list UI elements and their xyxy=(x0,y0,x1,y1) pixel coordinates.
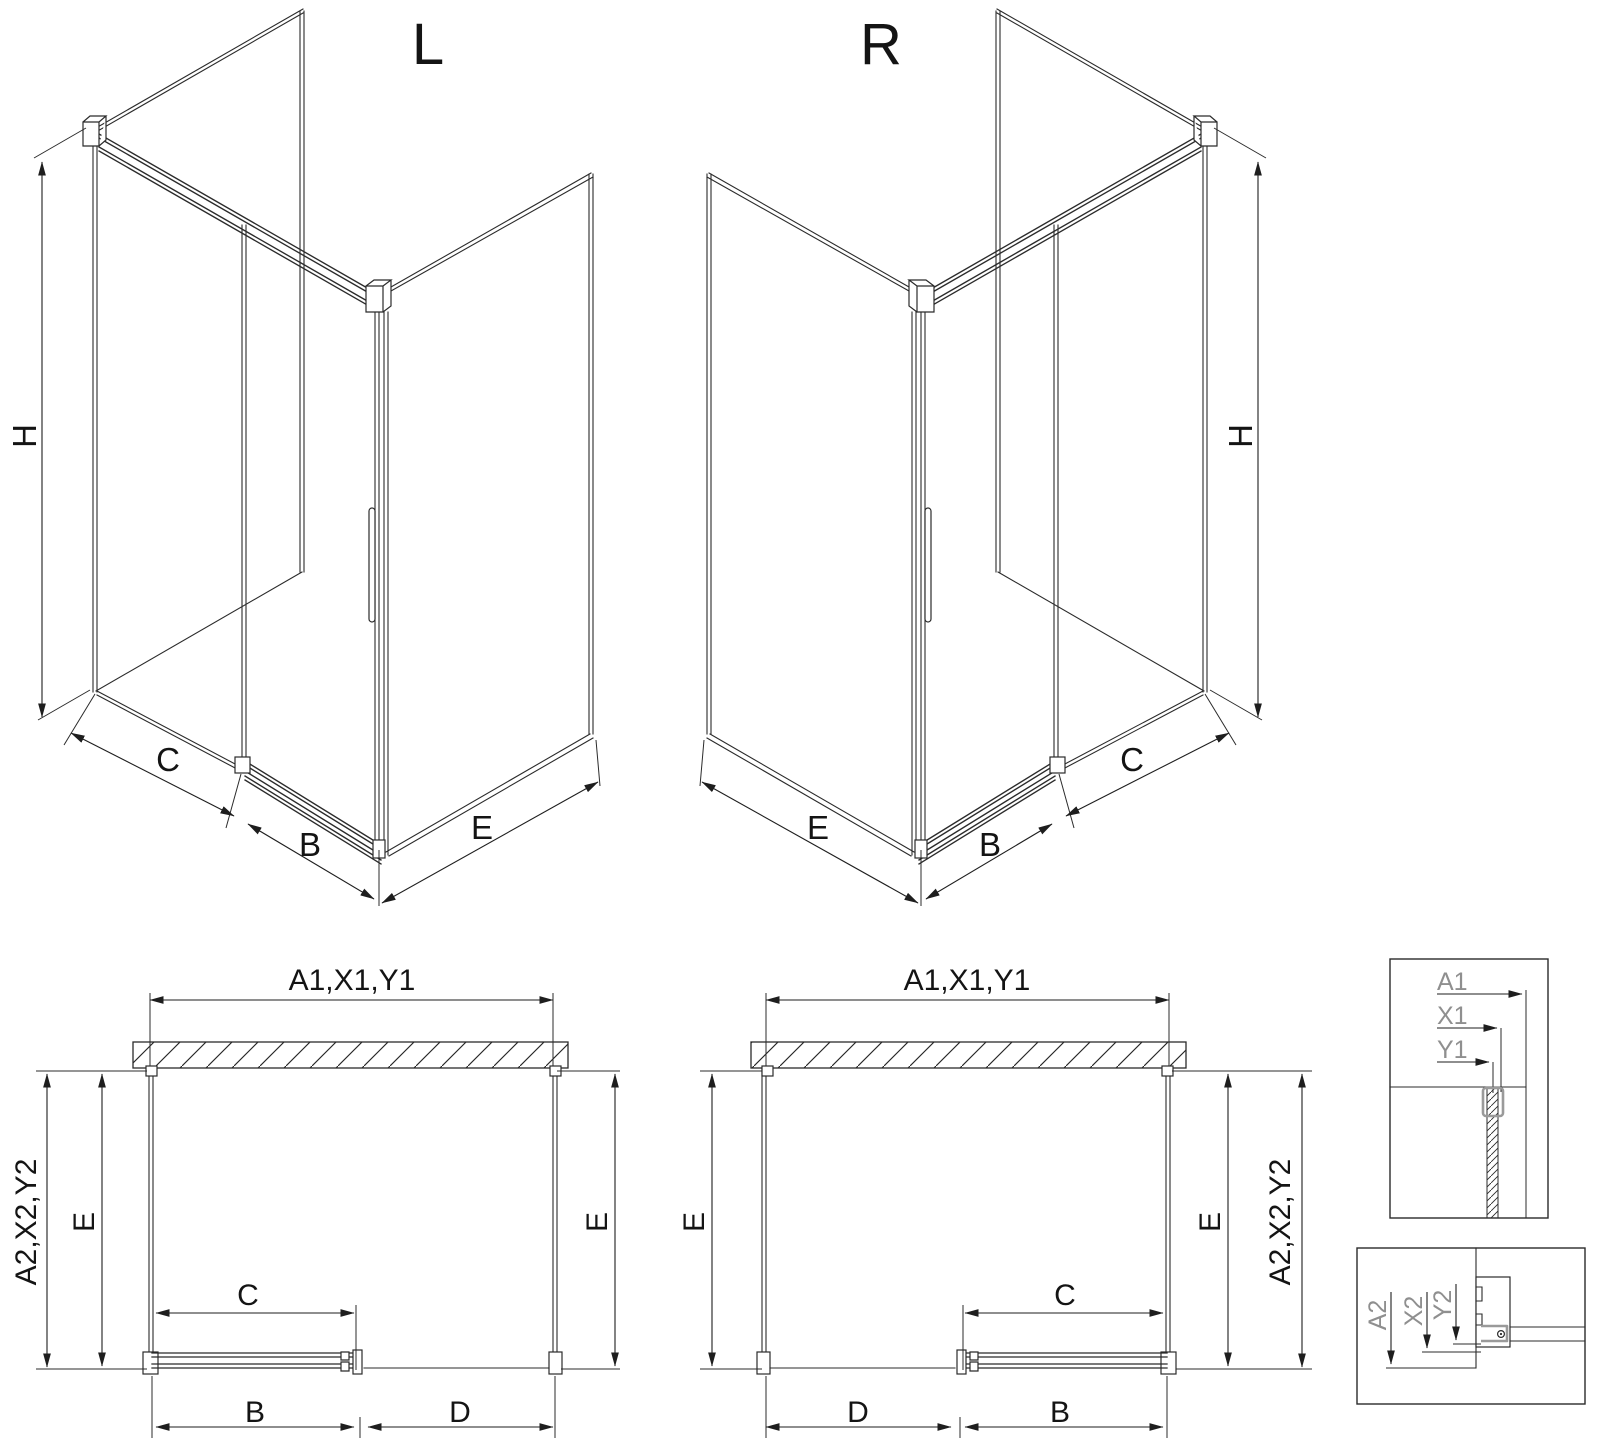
dim-line-fixed xyxy=(71,733,234,816)
label-fixed-front: D xyxy=(449,1396,471,1429)
side-glass-panels xyxy=(762,1068,1170,1368)
detail-label-y1: Y1 xyxy=(1437,1036,1468,1064)
wall-section xyxy=(133,1042,568,1068)
panel-profiles xyxy=(757,1066,1176,1374)
label-fixed-front: D xyxy=(847,1396,869,1429)
detail-label-a1: A1 xyxy=(1437,968,1468,996)
corner-connector xyxy=(366,280,391,312)
dim-label-height: H xyxy=(1222,424,1259,448)
door-handle xyxy=(925,508,931,622)
detail-label-y2: Y2 xyxy=(1429,1290,1457,1321)
label-door: B xyxy=(1050,1396,1070,1429)
detail-label-x1: X1 xyxy=(1437,1002,1468,1030)
plan-width-label: A1,X1,Y1 xyxy=(289,964,416,997)
top-rail xyxy=(99,134,369,306)
door-handle xyxy=(369,508,375,622)
side-glass-panels xyxy=(149,1068,557,1368)
wall-bracket xyxy=(1194,116,1217,146)
plan-left-variant: A1,X1,Y1 E E A2,X2,Y2 C B D xyxy=(10,964,620,1438)
dim-label-door: B xyxy=(979,826,1001,863)
label-depth-group: A2,X2,Y2 xyxy=(10,1159,43,1286)
top-rail xyxy=(931,134,1201,306)
figure-right-variant: R H C B E xyxy=(700,9,1266,906)
detail-label-a2: A2 xyxy=(1364,1300,1392,1331)
panel-foot xyxy=(1050,757,1065,773)
plan-width-label: A1,X1,Y1 xyxy=(904,964,1031,997)
label-door: B xyxy=(245,1396,265,1429)
dim-line-fixed xyxy=(1066,733,1229,816)
door-edge-profile xyxy=(353,1350,362,1374)
dim-label-height: H xyxy=(6,424,43,448)
dim-label-side: E xyxy=(471,809,493,846)
door-rollers xyxy=(341,1352,349,1371)
label-opening: C xyxy=(1054,1279,1076,1312)
label-depth-left: E xyxy=(68,1212,101,1232)
label-depth-right: E xyxy=(1194,1212,1227,1232)
dim-label-fixed: C xyxy=(1120,741,1144,778)
label-depth-group: A2,X2,Y2 xyxy=(1264,1159,1297,1286)
dimensions-right-iso: H C B E xyxy=(700,128,1266,906)
label-depth-left: E xyxy=(678,1212,711,1232)
detail-label-x2: X2 xyxy=(1400,1296,1428,1327)
glass-section xyxy=(1487,1088,1498,1218)
glass-section-lines xyxy=(1510,1327,1585,1341)
label-opening: C xyxy=(237,1279,259,1312)
corner-connector xyxy=(909,280,934,312)
door-rollers xyxy=(970,1352,978,1371)
figure-left-variant: L H C B E xyxy=(6,9,600,906)
glass-panel-edges xyxy=(93,9,593,856)
wall-section xyxy=(751,1042,1186,1068)
panel-profiles xyxy=(143,1066,562,1374)
glass-panel-edges xyxy=(707,9,1207,856)
wall-bracket xyxy=(83,116,106,146)
sliding-door-plan xyxy=(152,1353,361,1368)
shower-enclosure-diagram: L H C B E R xyxy=(0,0,1600,1438)
door-edge-profile xyxy=(957,1350,966,1374)
detail-wall-profile-bottom: A2 X2 Y2 xyxy=(1357,1248,1585,1404)
variant-left-title: L xyxy=(412,12,444,77)
plan-right-variant: A1,X1,Y1 E E A2,X2,Y2 C B D xyxy=(678,964,1312,1438)
dim-label-fixed: C xyxy=(156,741,180,778)
variant-right-title: R xyxy=(860,12,902,77)
dimensions-left-iso: H C B E xyxy=(6,128,600,906)
fittings xyxy=(909,116,1217,858)
dimensions-right-plan: E E A2,X2,Y2 C B D xyxy=(678,1071,1312,1438)
panel-foot xyxy=(235,757,250,773)
fittings xyxy=(83,116,391,858)
detail-wall-fixing-top: A1 X1 Y1 xyxy=(1390,959,1548,1218)
sliding-door-plan xyxy=(958,1353,1167,1368)
label-depth-right: E xyxy=(581,1212,614,1232)
dim-label-side: E xyxy=(807,809,829,846)
technical-drawing-sheet: L H C B E R xyxy=(0,0,1600,1438)
fixing-screw-center xyxy=(1500,1333,1502,1335)
dim-label-door: B xyxy=(299,826,321,863)
dimensions-left-plan: E E A2,X2,Y2 C B D xyxy=(10,1071,620,1438)
